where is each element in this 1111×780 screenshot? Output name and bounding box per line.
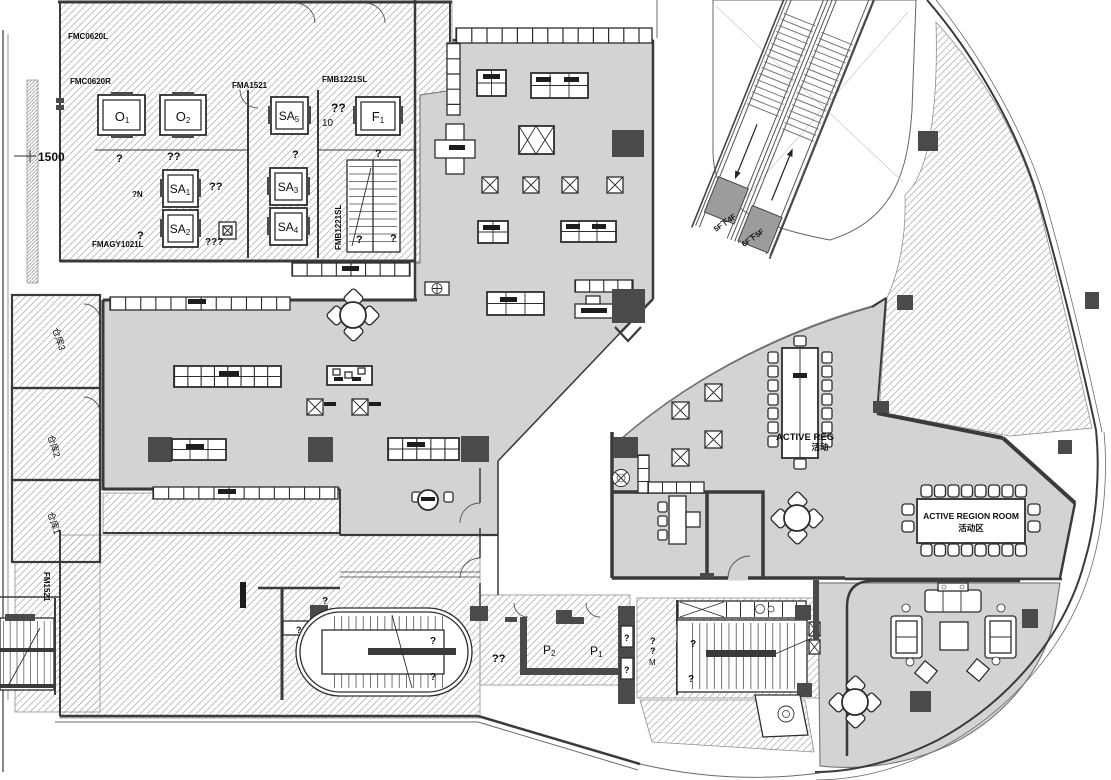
kiosk: [308, 437, 333, 462]
wall-cabinet-col: [447, 43, 460, 115]
wall-cabinet-row: [110, 297, 290, 310]
wall-cabinet-row: [153, 487, 338, 499]
x-table: [672, 402, 689, 419]
display-table: [388, 438, 459, 460]
code-label: FMB1221SL: [322, 75, 367, 84]
active-room-subtitle: 活动区: [958, 523, 984, 533]
code-label: FMA1521: [232, 81, 268, 90]
svg-text:?: ?: [390, 233, 397, 245]
code-label-vertical: FMB1221SL: [334, 205, 343, 250]
side-cell: [809, 640, 820, 654]
svg-text:?N: ?N: [132, 190, 143, 199]
svg-text:10: 10: [322, 118, 334, 129]
counter: [678, 601, 806, 618]
svg-text:?: ?: [322, 596, 328, 607]
wall-cabinet-row: [292, 263, 410, 276]
wall-cabinet-row: [648, 482, 704, 493]
code-label-vertical: FM1521: [42, 572, 51, 602]
floor-plan-page: FMC0620L FMC0620R FMA1521 FMB1221SL FMAG…: [0, 0, 1111, 780]
svg-text:?: ?: [137, 230, 144, 242]
svg-text:??: ??: [492, 653, 506, 665]
wall-cabinet-row: [456, 28, 652, 43]
kiosk: [910, 691, 931, 712]
svg-text:?: ?: [430, 636, 436, 647]
svg-text:??: ??: [167, 151, 181, 163]
svg-text:?: ?: [356, 234, 363, 246]
x-table: [705, 431, 722, 448]
svg-text:??: ??: [209, 181, 223, 193]
corridor-label-chip: [240, 582, 246, 608]
floor-plan-drawing: FMC0620L FMC0620R FMA1521 FMB1221SL FMAG…: [0, 0, 1111, 780]
display-table: [477, 70, 506, 96]
sink-room: [755, 695, 808, 737]
svg-text:??: ??: [331, 101, 346, 115]
armchair: [891, 616, 922, 658]
svg-text:?: ?: [624, 633, 630, 643]
svg-text:?: ?: [116, 153, 123, 165]
svg-text:?: ?: [650, 646, 656, 656]
code-label: FMC0620R: [70, 77, 111, 86]
wall-cabinet-col: [638, 455, 649, 493]
oval-stair: [296, 608, 472, 696]
display-table: [172, 439, 226, 460]
svg-text:?: ?: [430, 672, 436, 683]
display-table-long: [174, 366, 281, 387]
svg-text:?: ?: [375, 148, 382, 160]
stair: [677, 620, 812, 692]
column-pair: [519, 126, 554, 154]
svg-text:?: ?: [296, 625, 302, 635]
x-table: [672, 449, 689, 466]
active-zone-subtitle: 活动: [811, 442, 829, 452]
svg-text:?: ?: [688, 674, 694, 685]
kiosk: [612, 130, 644, 157]
armchair: [985, 616, 1016, 658]
svg-text:?: ?: [624, 665, 630, 675]
svg-text:M: M: [649, 658, 656, 667]
dimension-1500: 1500: [38, 150, 65, 164]
active-room-title: ACTIVE REGION ROOM: [923, 511, 1019, 521]
kiosk: [461, 436, 489, 462]
display-table: [487, 292, 544, 315]
code-label: FMC0620L: [68, 32, 108, 41]
display-table: [478, 221, 508, 243]
x-table: [705, 384, 722, 401]
svg-text:?: ?: [650, 636, 656, 646]
corridor-kiosk: [612, 289, 645, 323]
fan-coil: [425, 282, 449, 295]
svg-text:???: ???: [205, 237, 223, 248]
coffee-table: [940, 622, 968, 650]
code-label: FMAGY1021L: [92, 240, 144, 249]
kiosk: [148, 437, 172, 462]
plant: [613, 470, 630, 487]
svg-text:?: ?: [690, 639, 696, 650]
display-table: [531, 73, 588, 98]
activity-table: [327, 366, 372, 385]
svg-text:?: ?: [292, 149, 299, 161]
display-table: [561, 221, 616, 242]
